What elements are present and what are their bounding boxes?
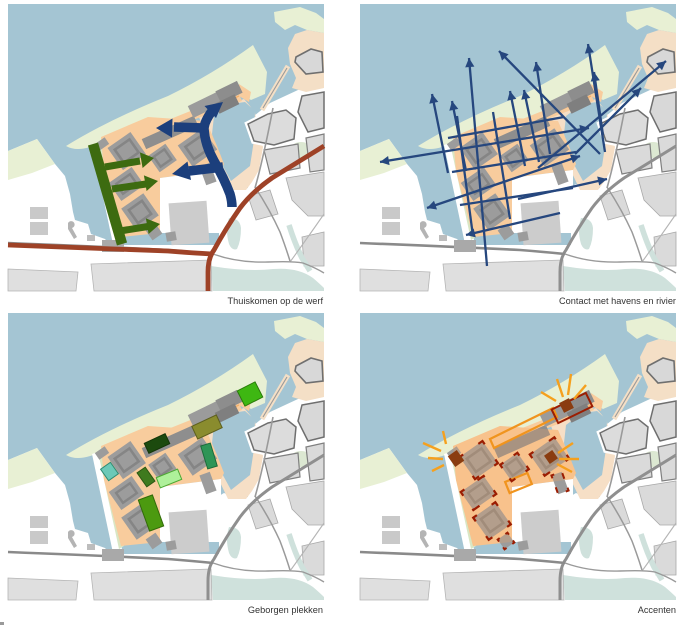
svg-text:Geborgen plekken: Geborgen plekken (248, 605, 323, 615)
svg-text:Contact met havens en rivier: Contact met havens en rivier (559, 296, 676, 306)
svg-text:Thuiskomen op de werf: Thuiskomen op de werf (228, 296, 324, 306)
svg-text:Accenten: Accenten (638, 605, 676, 615)
